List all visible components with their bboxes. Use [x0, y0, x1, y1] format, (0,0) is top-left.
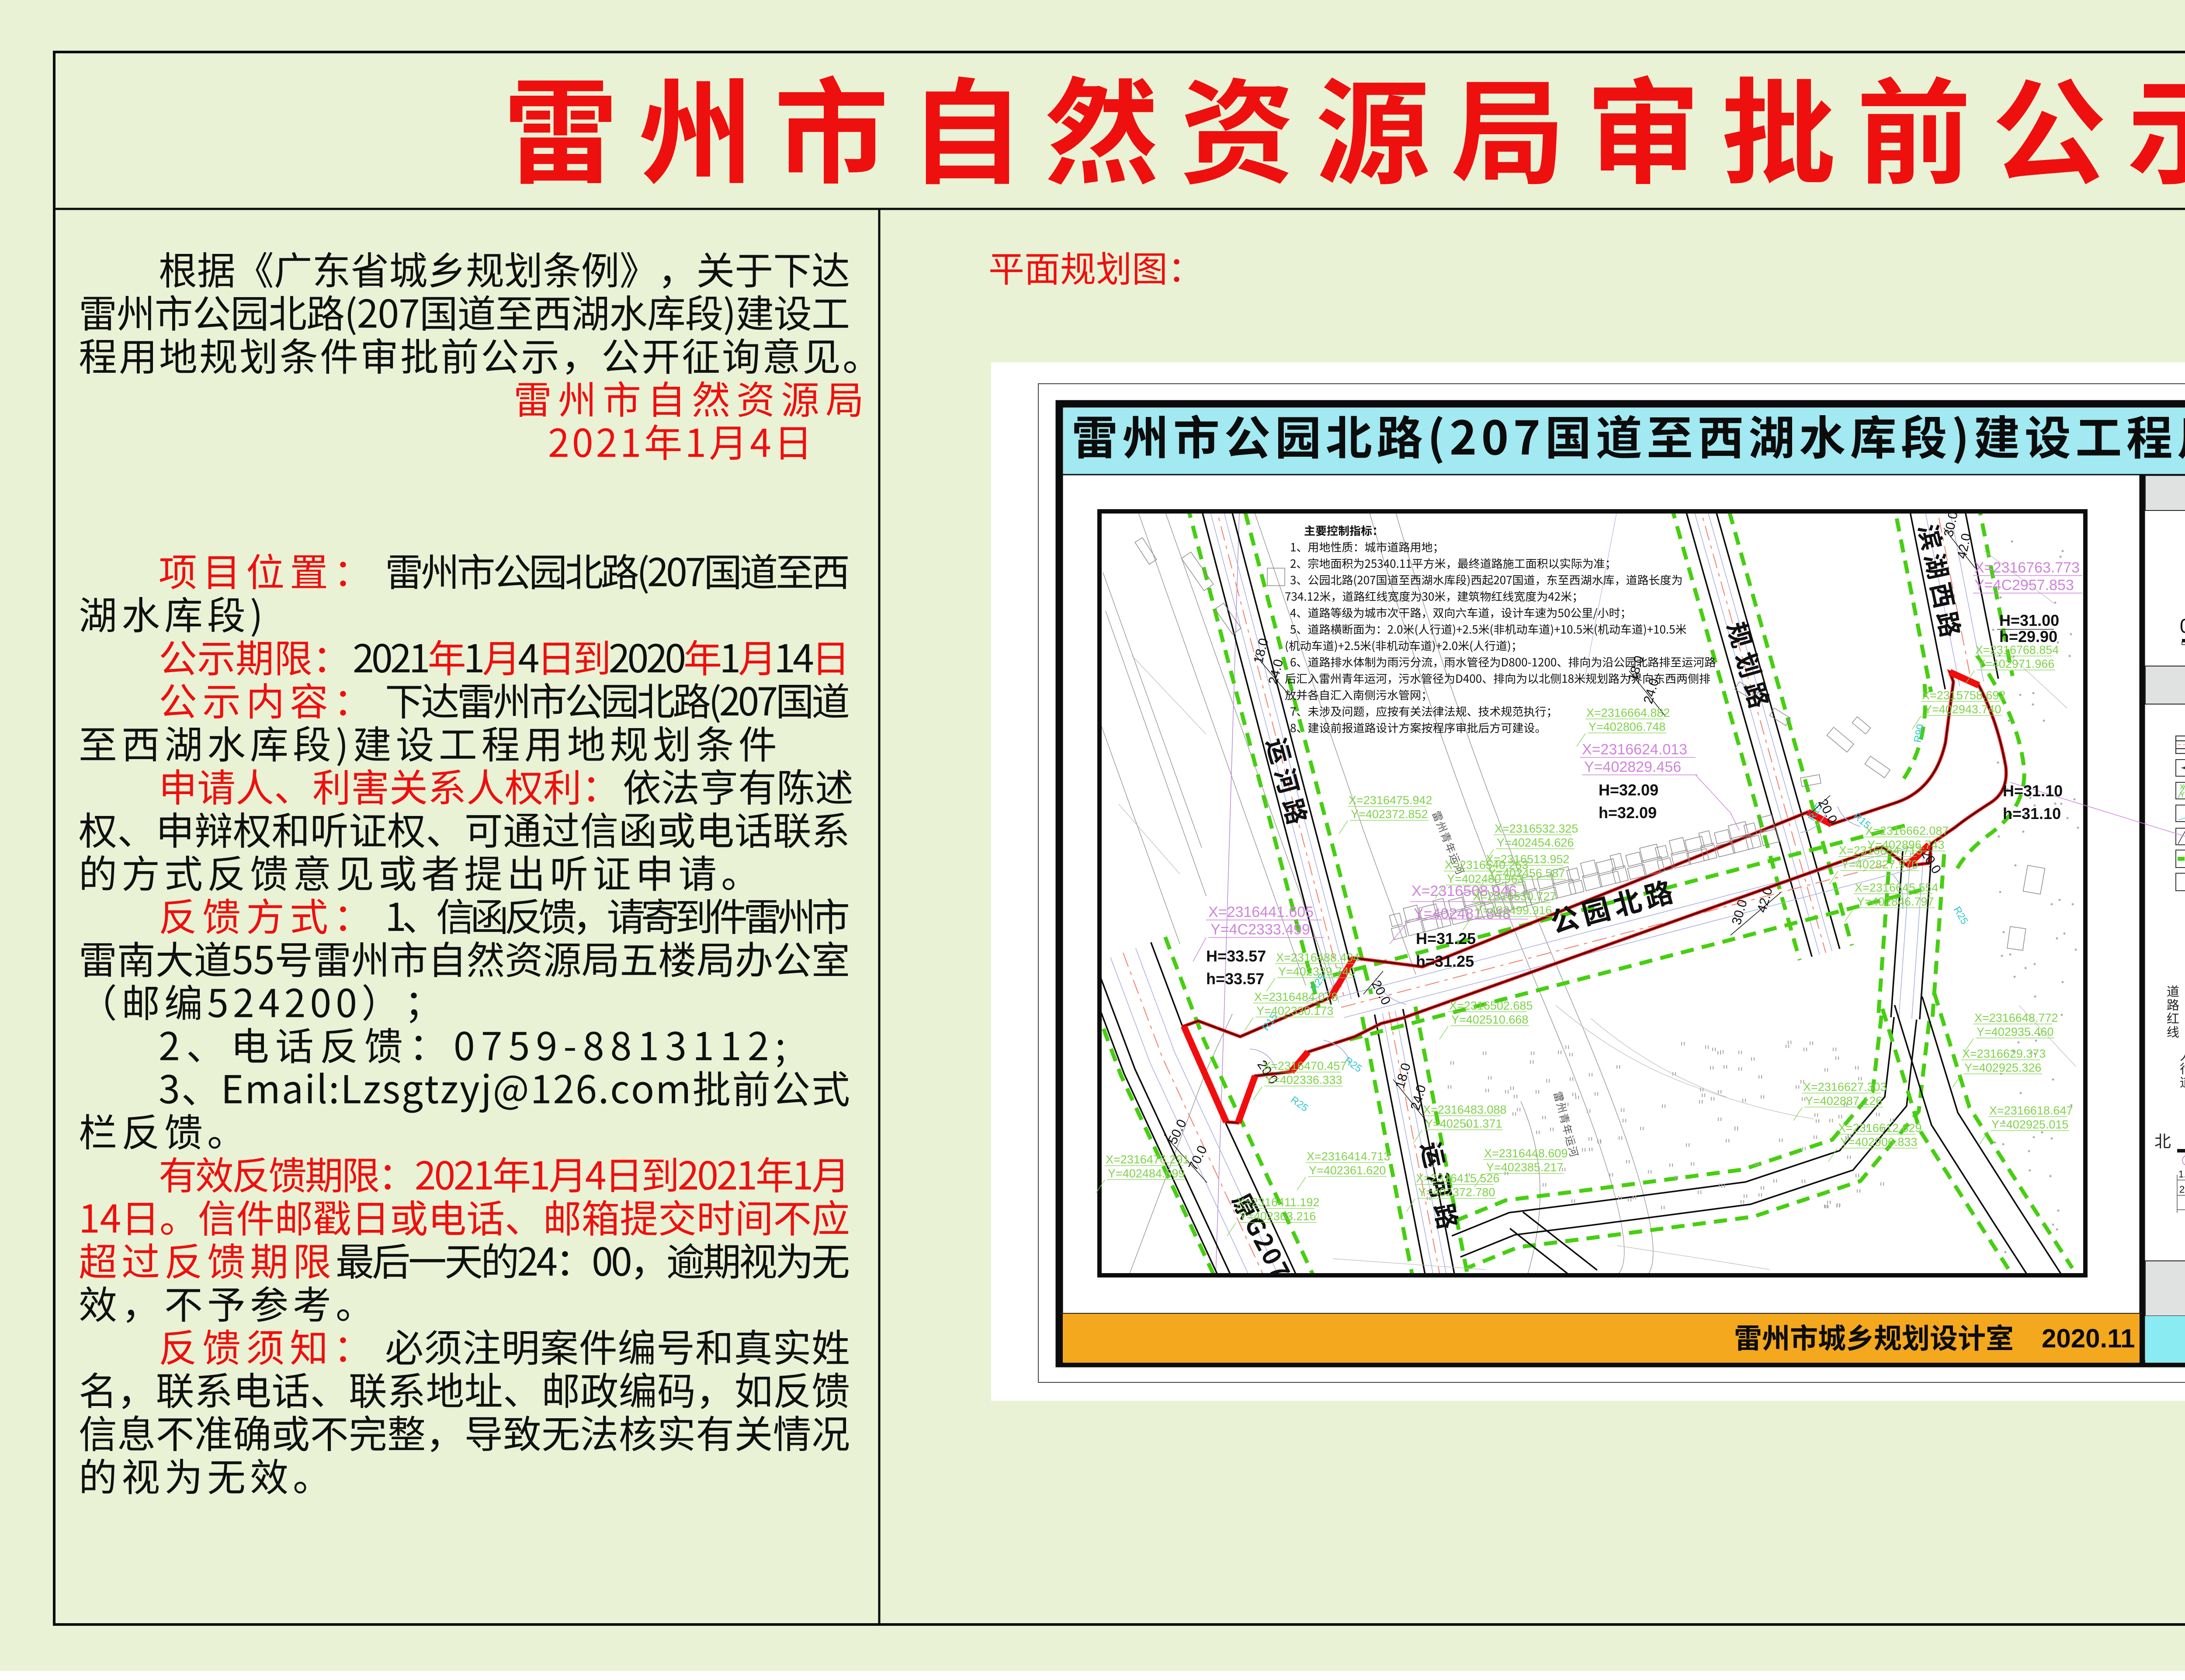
- svg-text:X=2316532.325: X=2316532.325: [1495, 822, 1578, 835]
- svg-text:X=2316484.078: X=2316484.078: [1254, 990, 1338, 1003]
- svg-text:Y=402484.699: Y=402484.699: [1108, 1167, 1185, 1180]
- svg-text:Y=4C2333.499: Y=4C2333.499: [1210, 921, 1310, 938]
- svg-text:Y=402827.970: Y=402827.970: [1841, 858, 1918, 871]
- svg-text:Y=402501.371: Y=402501.371: [1425, 1117, 1502, 1130]
- svg-text:Y=402330.173: Y=402330.173: [1256, 1004, 1333, 1017]
- svg-text:h=33.57: h=33.57: [1206, 970, 1264, 988]
- svg-text:X=2316618.647: X=2316618.647: [1989, 1104, 2073, 1117]
- svg-text:Y=402336.333: Y=402336.333: [1265, 1073, 1342, 1086]
- svg-text:X=2315758.692: X=2315758.692: [1922, 689, 2005, 702]
- svg-text:Y=4C2957.853: Y=4C2957.853: [1974, 577, 2074, 594]
- svg-text:X=2316411.192: X=2316411.192: [1237, 1196, 1319, 1209]
- svg-text:X=2316768.854: X=2316768.854: [1975, 643, 2059, 656]
- svg-text:Y=402971.966: Y=402971.966: [1977, 657, 2054, 670]
- svg-text:X=2316662.087: X=2316662.087: [1865, 824, 1949, 837]
- svg-text:Y=402806.748: Y=402806.748: [1588, 720, 1665, 733]
- svg-text:Y=402925.326: Y=402925.326: [1964, 1061, 2041, 1074]
- svg-text:X=2316763.773: X=2316763.773: [1974, 559, 2080, 576]
- svg-text:Y=402906.833: Y=402906.833: [1840, 1135, 1917, 1149]
- svg-text:X=2316513.952: X=2316513.952: [1486, 853, 1569, 866]
- svg-text:X=2316414.713: X=2316414.713: [1307, 1150, 1390, 1163]
- svg-text:Y=402943.740: Y=402943.740: [1924, 703, 2001, 716]
- svg-text:Y=402925.015: Y=402925.015: [1991, 1118, 2068, 1131]
- svg-text:h=32.09: h=32.09: [1599, 804, 1657, 822]
- svg-text:X=2316483.088: X=2316483.088: [1423, 1103, 1506, 1116]
- svg-text:Y=402385.217: Y=402385.217: [1486, 1161, 1563, 1174]
- svg-text:X=2316664.882: X=2316664.882: [1586, 706, 1670, 719]
- svg-text:X=2316470.457: X=2316470.457: [1263, 1059, 1346, 1073]
- svg-text:X=2316612.629: X=2316612.629: [1838, 1121, 1921, 1135]
- svg-text:H=31.00: H=31.00: [1999, 611, 2059, 629]
- svg-text:X=2316645.554: X=2316645.554: [1855, 881, 1938, 894]
- svg-text:Y=402846.797: Y=402846.797: [1857, 895, 1934, 908]
- svg-text:X=2316530.727: X=2316530.727: [1473, 890, 1556, 903]
- svg-text:1.5 1.5: 1.5 1.5: [2178, 1169, 2185, 1180]
- svg-text:Y=402935.460: Y=402935.460: [1977, 1025, 2053, 1038]
- svg-text:Y=402454.626: Y=402454.626: [1497, 836, 1574, 849]
- svg-text:2.0: 2.0: [2179, 1184, 2185, 1195]
- svg-text:h=31.25: h=31.25: [1416, 952, 1474, 970]
- svg-text:X=2316627.303: X=2316627.303: [1803, 1080, 1887, 1093]
- svg-text:Y=402339.740: Y=402339.740: [1278, 965, 1355, 978]
- svg-text:Y=402499.916: Y=402499.916: [1475, 904, 1552, 917]
- svg-text:X=2316488.404: X=2316488.404: [1276, 951, 1360, 964]
- svg-text:X=2316648.772: X=2316648.772: [1974, 1011, 2058, 1024]
- svg-text:Y=402361.620: Y=402361.620: [1309, 1164, 1386, 1177]
- svg-text:X=2316441.605: X=2316441.605: [1208, 904, 1314, 920]
- svg-text:Y=402887.126: Y=402887.126: [1805, 1094, 1882, 1107]
- svg-text:H=31.10: H=31.10: [2003, 782, 2063, 800]
- svg-text:H=32.09: H=32.09: [1599, 781, 1658, 799]
- svg-text:Y=402372.852: Y=402372.852: [1351, 808, 1428, 821]
- svg-text:2020.11: 2020.11: [2042, 1324, 2135, 1353]
- svg-text:X=2316476.291: X=2316476.291: [1106, 1153, 1189, 1166]
- svg-text:X=2316624.013: X=2316624.013: [1582, 741, 1687, 758]
- svg-text:X=2316448.609: X=2316448.609: [1484, 1147, 1568, 1160]
- svg-text:h=29.90: h=29.90: [1999, 628, 2057, 646]
- svg-text:H=33.57: H=33.57: [1206, 947, 1266, 965]
- svg-text:h=31.10: h=31.10: [2003, 805, 2061, 823]
- svg-text:Y=476323.736: Y=476323.736: [2180, 791, 2185, 799]
- svg-text:H=31.25: H=31.25: [1416, 930, 1476, 948]
- svg-text:Y=402372.780: Y=402372.780: [1418, 1186, 1495, 1199]
- svg-text:X=2316654.713: X=2316654.713: [1839, 844, 1922, 857]
- svg-text:Y=402363.216: Y=402363.216: [1239, 1210, 1316, 1223]
- svg-text:X=2316629.373: X=2316629.373: [1962, 1047, 2046, 1060]
- svg-text:Y=402829.456: Y=402829.456: [1584, 759, 1681, 775]
- svg-text:X=2316475.942: X=2316475.942: [1349, 794, 1432, 807]
- svg-text:Y=402456.587: Y=402456.587: [1488, 867, 1565, 880]
- svg-text:0: 0: [2180, 614, 2185, 637]
- svg-text:X=2316502.685: X=2316502.685: [1449, 999, 1533, 1012]
- svg-text:Y=402510.668: Y=402510.668: [1451, 1013, 1528, 1026]
